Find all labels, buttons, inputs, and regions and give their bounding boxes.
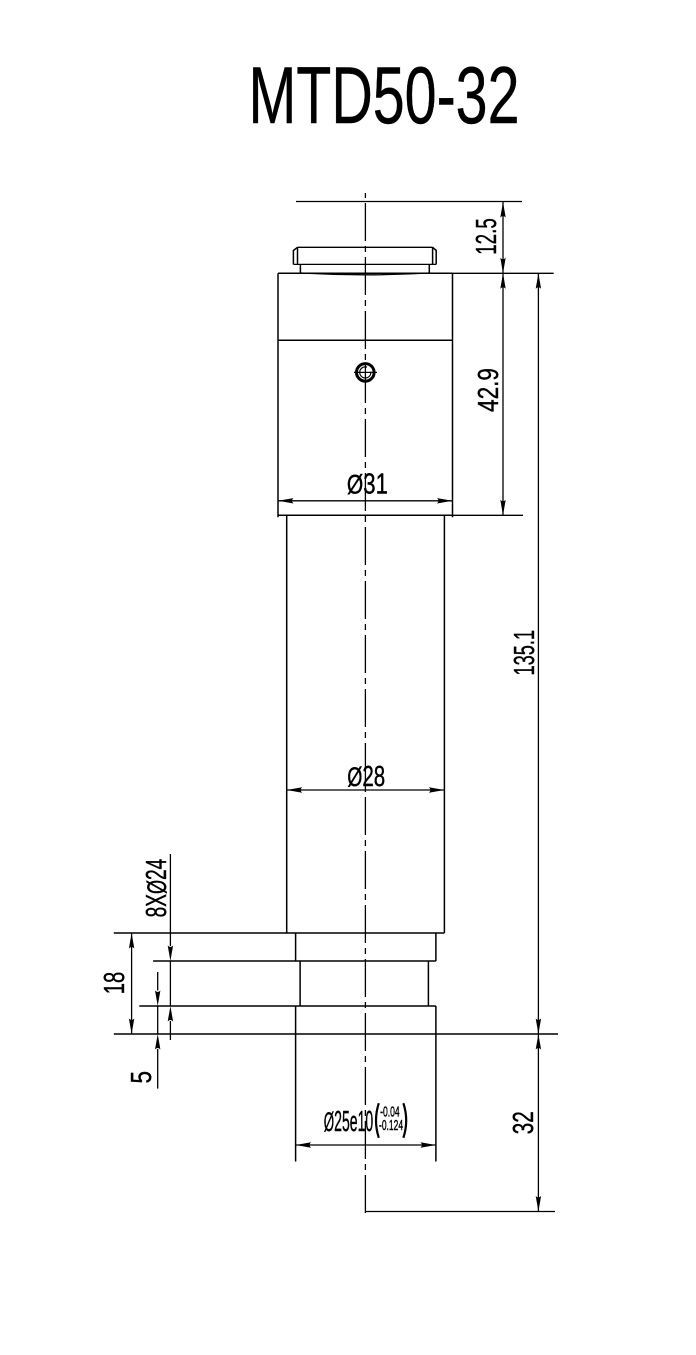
svg-text:32: 32 xyxy=(508,1111,540,1134)
svg-text:Ø31: Ø31 xyxy=(347,468,388,500)
svg-text:MTD50-32: MTD50-32 xyxy=(249,51,520,141)
svg-text:12.5: 12.5 xyxy=(471,218,503,255)
svg-text:135.1: 135.1 xyxy=(509,630,541,676)
svg-text:5: 5 xyxy=(126,1071,158,1084)
svg-text:42.9: 42.9 xyxy=(473,368,505,412)
svg-text:-0.124: -0.124 xyxy=(379,1117,403,1134)
svg-text:Ø28: Ø28 xyxy=(347,761,385,793)
svg-text:Ø25e10: Ø25e10 xyxy=(324,1106,373,1138)
svg-text:18: 18 xyxy=(99,972,131,995)
svg-text:8XØ24: 8XØ24 xyxy=(141,859,173,918)
